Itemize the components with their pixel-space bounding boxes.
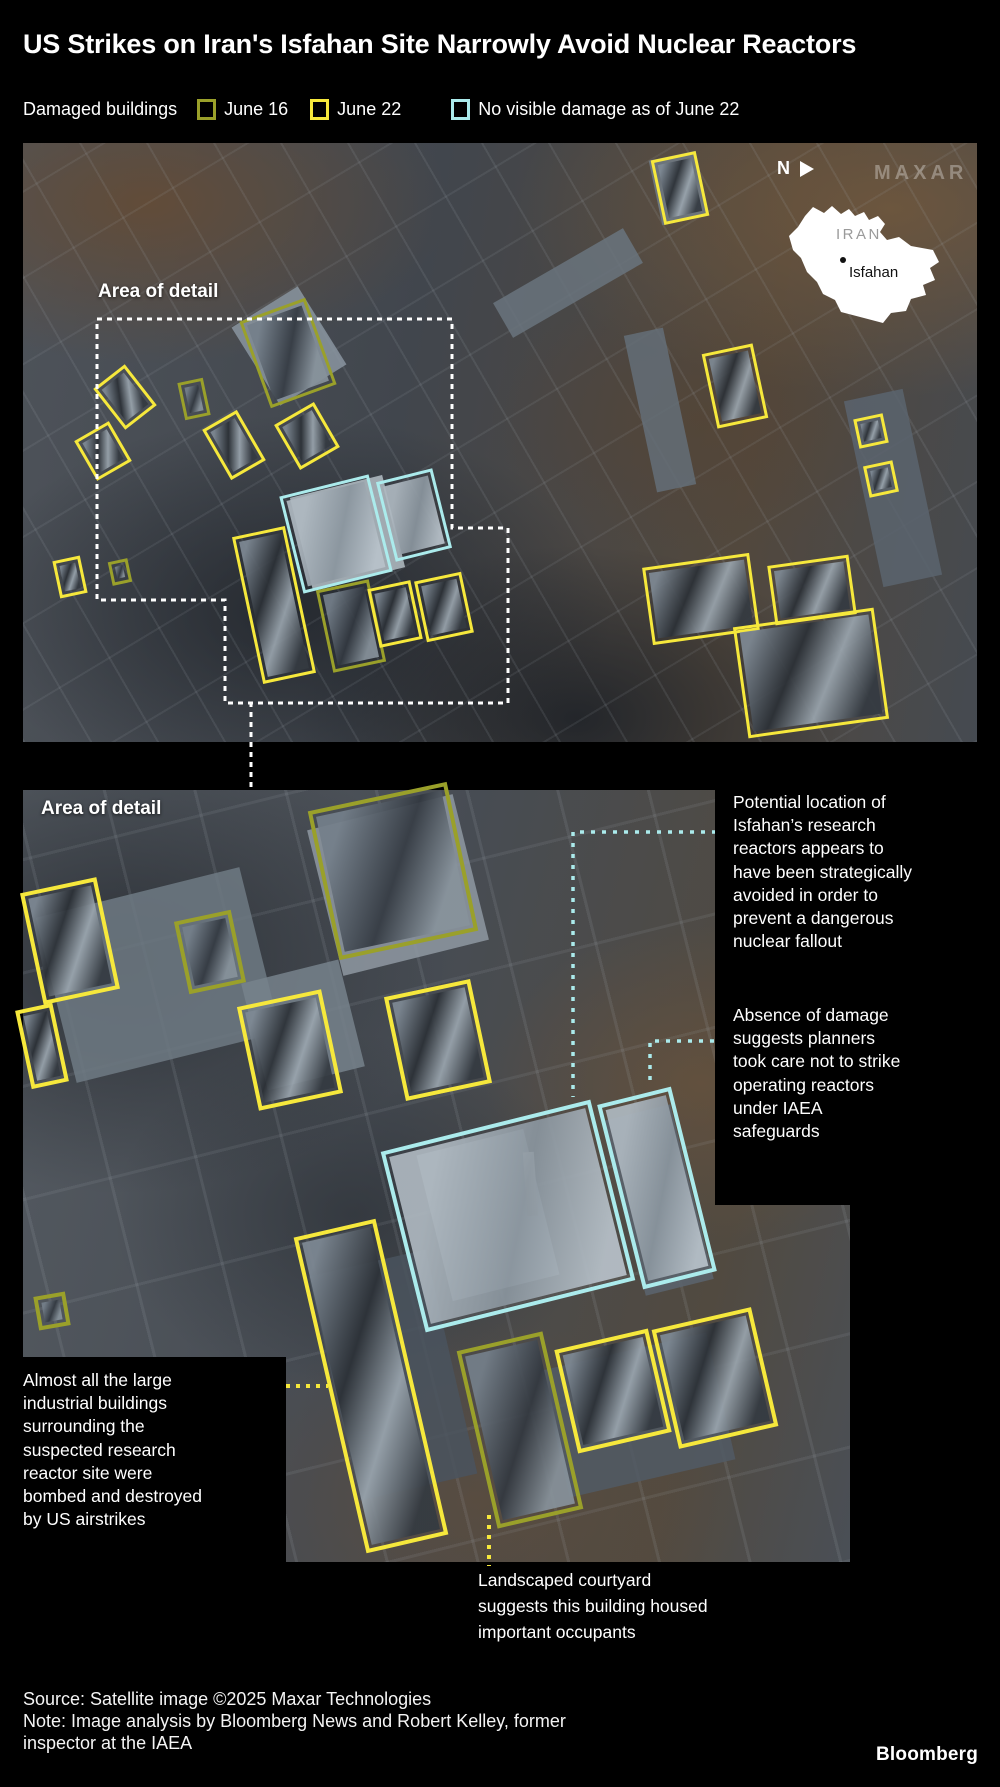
- isfahan-city-dot: [840, 257, 846, 263]
- bloomberg-graphic: US Strikes on Iran's Isfahan Site Narrow…: [0, 0, 1000, 1787]
- annotation-potential-location: Potential location of Isfahan’s research…: [733, 791, 973, 953]
- legend-item-june16: June 16: [197, 99, 288, 120]
- note-credit: Note: Image analysis by Bloomberg News a…: [23, 1710, 566, 1754]
- legend: Damaged buildings June 16 June 22 No vis…: [23, 99, 761, 120]
- compass-n-label: N: [777, 158, 790, 179]
- annotation-absence-of-damage: Absence of damage suggests planners took…: [733, 1004, 973, 1143]
- june22-swatch-icon: [310, 99, 329, 120]
- isfahan-city-label: Isfahan: [849, 264, 898, 281]
- north-arrow-icon: [800, 161, 814, 177]
- june16-swatch-icon: [197, 99, 216, 120]
- legend-label: Damaged buildings: [23, 99, 177, 120]
- terrain-texture: [541, 1333, 736, 1498]
- nodamage-swatch-icon: [451, 99, 470, 120]
- page-title: US Strikes on Iran's Isfahan Site Narrow…: [23, 26, 963, 63]
- bloomberg-logo: Bloomberg: [876, 1744, 978, 1766]
- area-of-detail-label-detail: Area of detail: [41, 798, 161, 820]
- source-credit: Source: Satellite image ©2025 Maxar Tech…: [23, 1688, 431, 1710]
- iran-country-label: IRAN: [836, 226, 882, 243]
- terrain-texture: [493, 228, 643, 338]
- terrain-texture: [36, 867, 281, 1083]
- terrain-texture: [624, 328, 696, 493]
- terrain-texture: [290, 475, 405, 590]
- legend-item-label: No visible damage as of June 22: [478, 99, 739, 120]
- terrain-texture: [241, 960, 365, 1091]
- area-of-detail-label-overview: Area of detail: [98, 281, 218, 303]
- annotation-almost-all-buildings: Almost all the large industrial building…: [23, 1369, 273, 1531]
- maxar-watermark: MAXAR: [874, 162, 967, 185]
- terrain-texture: [649, 151, 710, 226]
- annotation-landscaped-courtyard: Landscaped courtyard suggests this build…: [478, 1567, 778, 1645]
- terrain-texture: [844, 389, 942, 587]
- legend-item-label: June 16: [224, 99, 288, 120]
- legend-item-june22: June 22: [310, 99, 401, 120]
- terrain-texture: [307, 794, 489, 976]
- legend-item-nodamage: No visible damage as of June 22: [451, 99, 739, 120]
- north-compass: N: [777, 158, 814, 179]
- legend-item-label: June 22: [337, 99, 401, 120]
- terrain-texture: [602, 1104, 713, 1296]
- terrain-texture: [232, 286, 347, 405]
